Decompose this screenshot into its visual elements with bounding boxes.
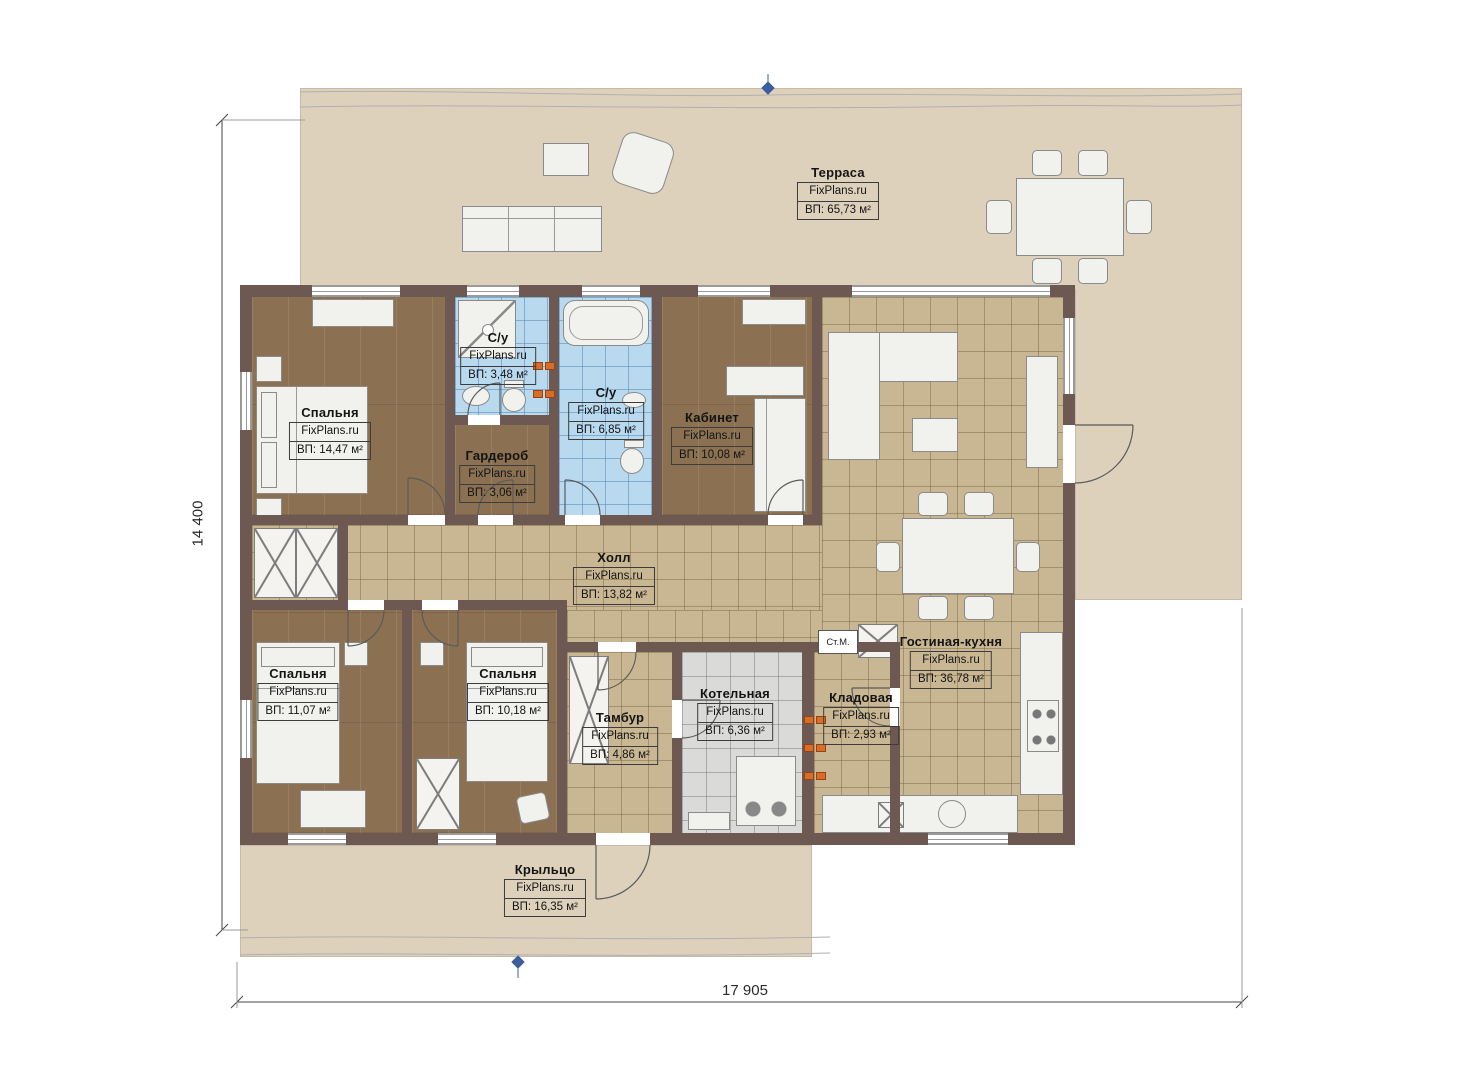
nightstand [344, 642, 368, 666]
toilet [620, 448, 644, 474]
dining-chair [1016, 542, 1040, 572]
dining-chair [1126, 200, 1152, 234]
watermark: FixPlans.ru [258, 684, 337, 703]
wall-interior [240, 600, 567, 610]
window [582, 285, 640, 297]
boiler-unit [736, 756, 796, 826]
x-mark-icon [255, 529, 295, 597]
room-name: Тамбур [582, 710, 658, 725]
room-area: ВП: 10,08 м² [672, 447, 752, 465]
room-name: Котельная [697, 686, 773, 701]
dining-chair [986, 200, 1012, 234]
room-info-box: FixPlans.ru ВП: 10,08 м² [671, 427, 753, 465]
room-area: ВП: 4,86 м² [583, 747, 657, 765]
room-area: ВП: 2,93 м² [824, 727, 898, 745]
socket-marker [545, 362, 555, 370]
room-area: ВП: 16,35 м² [505, 899, 585, 917]
pillow [261, 647, 335, 667]
room-area: ВП: 36,78 м² [911, 671, 991, 689]
watermark: FixPlans.ru [824, 708, 898, 727]
room-label-office: Кабинет FixPlans.ru ВП: 10,08 м² [671, 410, 753, 465]
room-name: Терраса [797, 165, 879, 180]
door-opening [348, 600, 384, 610]
dining-chair [964, 596, 994, 620]
desk [726, 366, 804, 396]
watermark: FixPlans.ru [583, 728, 657, 747]
window [240, 700, 252, 758]
dimension-height: 14 400 [190, 484, 207, 564]
bathtub [563, 300, 649, 346]
pillow [261, 392, 277, 438]
socket-marker [804, 772, 814, 780]
window [312, 285, 400, 297]
room-name: Спальня [467, 666, 549, 681]
room-area: ВП: 14,47 м² [290, 442, 370, 460]
watermark: FixPlans.ru [672, 428, 752, 447]
wall-interior [672, 652, 682, 833]
room-area: ВП: 6,36 м² [698, 723, 772, 741]
kitchen-sink [938, 800, 966, 828]
watermark: FixPlans.ru [911, 652, 991, 671]
room-area: ВП: 10,18 м² [468, 703, 548, 721]
tv-unit [1026, 356, 1058, 468]
office-sofa [754, 398, 806, 512]
window [288, 833, 346, 845]
wall-interior [445, 297, 455, 525]
room-label-storage: Кладовая FixPlans.ru ВП: 2,93 м² [823, 690, 899, 745]
wall-interior [672, 642, 900, 652]
wall-interior [802, 642, 814, 833]
shelf-unit [742, 299, 806, 325]
watermark: FixPlans.ru [569, 403, 643, 422]
door-opening [672, 700, 682, 738]
socket-marker [804, 716, 814, 724]
watermark: FixPlans.ru [698, 704, 772, 723]
socket-marker [533, 390, 543, 398]
room-name: Спальня [257, 666, 338, 681]
corner-sofa-side [828, 332, 880, 460]
wall-interior [402, 610, 412, 833]
room-label-living-kitchen: Гостиная-кухня FixPlans.ru ВП: 36,78 м² [900, 634, 1002, 689]
room-area: ВП: 13,82 м² [574, 587, 654, 605]
room-label-bedroom-3: Спальня FixPlans.ru ВП: 10,18 м² [467, 666, 549, 721]
pillow [261, 442, 277, 488]
room-label-wardrobe-room: Гардероб FixPlans.ru ВП: 3,06 м² [459, 448, 535, 503]
room-name: Кабинет [671, 410, 753, 425]
room-area: ВП: 3,06 м² [460, 485, 534, 503]
nightstand [256, 356, 282, 382]
sofa-cushion-line [508, 207, 509, 251]
room-label-hall: Холл FixPlans.ru ВП: 13,82 м² [573, 550, 655, 605]
room-name: Спальня [289, 405, 371, 420]
room-label-boiler-room: Котельная FixPlans.ru ВП: 6,36 м² [697, 686, 773, 741]
dining-chair [1078, 150, 1108, 176]
terrace-door-opening [1063, 425, 1075, 483]
dining-chair [1032, 150, 1062, 176]
socket-marker [804, 744, 814, 752]
socket-marker [816, 772, 826, 780]
entry-door-opening [596, 833, 650, 845]
sofa-back-line [463, 218, 601, 219]
sofa-back-line [766, 399, 767, 511]
door-opening [768, 515, 803, 525]
door-opening [478, 515, 513, 525]
room-info-box: FixPlans.ru ВП: 2,93 м² [823, 707, 899, 745]
room-label-bedroom-1: Спальня FixPlans.ru ВП: 14,47 м² [289, 405, 371, 460]
dining-chair [918, 596, 948, 620]
hall-floor-extension [567, 610, 822, 642]
window [240, 372, 252, 430]
room-info-box: FixPlans.ru ВП: 13,82 м² [573, 567, 655, 605]
room-info-box: FixPlans.ru ВП: 3,06 м² [459, 465, 535, 503]
room-info-box: FixPlans.ru ВП: 16,35 м² [504, 879, 586, 917]
room-name: Крыльцо [504, 862, 586, 877]
wall-interior [252, 515, 822, 525]
room-info-box: FixPlans.ru ВП: 11,07 м² [257, 683, 338, 721]
wardrobe-box [416, 758, 460, 830]
sink [462, 386, 490, 406]
room-label-terrace: Терраса FixPlans.ru ВП: 65,73 м² [797, 165, 879, 220]
x-mark-icon [417, 759, 459, 829]
room-label-bathroom-1: С/у FixPlans.ru ВП: 3,48 м² [460, 330, 536, 385]
door-opening [598, 642, 636, 652]
room-info-box: FixPlans.ru ВП: 4,86 м² [582, 727, 658, 765]
room-name: Гардероб [459, 448, 535, 463]
floor-plan-canvas: Терраса FixPlans.ru ВП: 65,73 м² Спальня… [0, 0, 1474, 1080]
dining-chair [964, 492, 994, 516]
terrace-floor-right [1075, 289, 1242, 600]
wardrobe-box [296, 528, 338, 598]
watermark: FixPlans.ru [798, 183, 878, 202]
door-opening [422, 600, 458, 610]
watermark: FixPlans.ru [505, 880, 585, 899]
window [467, 285, 519, 297]
room-name: С/у [460, 330, 536, 345]
room-area: ВП: 6,85 м² [569, 422, 643, 440]
door-opening [565, 515, 600, 525]
room-area: ВП: 3,48 м² [461, 367, 535, 385]
kitchen-counter-bottom [822, 795, 1018, 833]
toilet [502, 388, 526, 412]
door-opening [408, 515, 445, 525]
room-name: Холл [573, 550, 655, 565]
wardrobe-box [254, 528, 296, 598]
room-area: ВП: 65,73 м² [798, 202, 878, 220]
room-info-box: FixPlans.ru ВП: 36,78 м² [910, 651, 992, 689]
room-info-box: FixPlans.ru ВП: 6,85 м² [568, 402, 644, 440]
wall-interior [549, 297, 559, 525]
wall-interior [338, 525, 348, 608]
room-info-box: FixPlans.ru ВП: 14,47 м² [289, 422, 371, 460]
dining-chair [918, 492, 948, 516]
wall-outer-left [240, 285, 252, 845]
dresser [312, 299, 394, 327]
x-mark-icon [297, 529, 337, 597]
room-name: Гостиная-кухня [900, 634, 1002, 649]
terrace-table [543, 143, 589, 176]
room-info-box: FixPlans.ru ВП: 6,36 м² [697, 703, 773, 741]
socket-marker [816, 744, 826, 752]
room-area: ВП: 11,07 м² [258, 703, 337, 721]
wall-interior [652, 297, 662, 525]
room-label-bedroom-2: Спальня FixPlans.ru ВП: 11,07 м² [257, 666, 338, 721]
terrace-dining-table [1016, 178, 1124, 256]
dining-chair [876, 542, 900, 572]
boiler-shelf [688, 812, 730, 830]
window [928, 833, 1008, 845]
watermark: FixPlans.ru [574, 568, 654, 587]
room-name: С/у [568, 385, 644, 400]
dining-chair [1032, 258, 1062, 284]
terrace-sofa [462, 206, 602, 252]
room-info-box: FixPlans.ru ВП: 65,73 м² [797, 182, 879, 220]
wall-interior [812, 297, 822, 525]
washing-machine-label: Ст.М. [818, 630, 858, 654]
room-info-box: FixPlans.ru ВП: 3,48 м² [460, 347, 536, 385]
room-label-bathroom-2: С/у FixPlans.ru ВП: 6,85 м² [568, 385, 644, 440]
room-info-box: FixPlans.ru ВП: 10,18 м² [467, 683, 549, 721]
window [698, 285, 770, 297]
room-name: Кладовая [823, 690, 899, 705]
watermark: FixPlans.ru [461, 348, 535, 367]
dining-table [902, 518, 1014, 594]
dimension-width: 17 905 [700, 982, 790, 999]
stove [1027, 700, 1059, 752]
watermark: FixPlans.ru [460, 466, 534, 485]
window [438, 833, 496, 845]
room-label-porch: Крыльцо FixPlans.ru ВП: 16,35 м² [504, 862, 586, 917]
toilet-tank [624, 440, 644, 448]
dining-chair [1078, 258, 1108, 284]
watermark: FixPlans.ru [290, 423, 370, 442]
sofa-cushion-line [554, 207, 555, 251]
pillow [471, 647, 543, 667]
coffee-table [912, 418, 958, 452]
watermark: FixPlans.ru [468, 684, 548, 703]
door-opening [468, 415, 500, 425]
window [1063, 318, 1075, 394]
nightstand [420, 642, 444, 666]
socket-marker [545, 390, 555, 398]
window-terrace-wide [852, 285, 1050, 297]
dresser [300, 790, 366, 828]
room-label-vestibule: Тамбур FixPlans.ru ВП: 4,86 м² [582, 710, 658, 765]
